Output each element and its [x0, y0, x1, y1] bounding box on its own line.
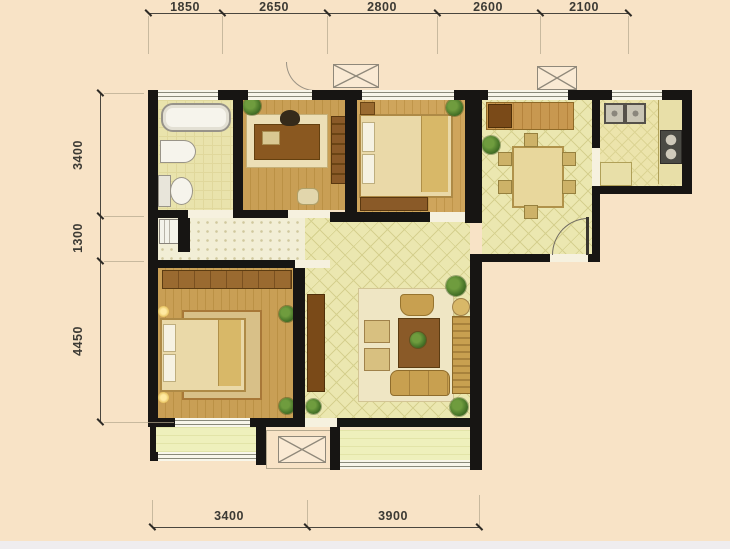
refrigerator-icon — [488, 104, 512, 128]
stove-icon — [660, 130, 682, 164]
dining-table-icon — [512, 146, 564, 208]
ac-platform-icon — [333, 64, 379, 88]
entry-door-leaf — [586, 217, 589, 255]
washing-machine-icon — [159, 219, 180, 244]
wall-kitchen-bottom — [592, 186, 692, 194]
wall-master-top — [148, 260, 295, 268]
dim-label-top-2: 2650 — [244, 0, 304, 14]
door-opening-bedroom2 — [430, 212, 465, 222]
wall-study-bedroom2 — [345, 90, 357, 218]
side-chair-icon — [364, 320, 390, 343]
dim-label-top-1: 1850 — [155, 0, 215, 14]
nightstand-icon — [360, 102, 375, 115]
door-opening-bathroom — [188, 210, 233, 218]
dim-label-left-1: 3400 — [71, 125, 85, 185]
door-opening-balcony — [305, 418, 337, 427]
wall-dining-bottom-end — [588, 254, 600, 262]
tv-cabinet-icon — [307, 294, 325, 392]
master-balcony-floor — [156, 427, 256, 453]
bench-icon — [360, 197, 428, 211]
wall-living-balcony-right — [470, 430, 482, 470]
wall-dining-bottom — [470, 254, 550, 262]
dim-guide — [104, 93, 144, 94]
window-bedroom2 — [362, 90, 454, 100]
pillow-icon — [163, 324, 176, 352]
bed-master-blanket — [218, 320, 241, 386]
dim-guide — [437, 16, 438, 54]
wall-kitchen-right — [682, 90, 692, 194]
window-master-south — [175, 418, 250, 427]
wall-kitchen-left — [592, 100, 600, 148]
dim-label-bottom-2: 3900 — [363, 509, 423, 523]
round-table-icon — [452, 298, 470, 316]
wall-living-south — [337, 418, 470, 427]
dim-line — [152, 527, 479, 528]
office-chair-icon — [280, 110, 300, 126]
plant-icon — [482, 136, 500, 154]
dim-guide — [327, 16, 328, 54]
wall-balcony-cap — [150, 452, 158, 461]
window-living-balcony — [340, 460, 470, 469]
dim-guide — [152, 500, 153, 527]
dim-guide — [540, 16, 541, 54]
dim-guide — [628, 16, 629, 54]
ac-platform-icon — [537, 66, 577, 90]
wall-living-balcony-left — [330, 425, 340, 470]
plant-icon — [450, 398, 468, 416]
door-opening-entry — [550, 254, 588, 262]
pillow-icon — [362, 154, 375, 184]
side-chair-icon — [364, 348, 390, 371]
dim-guide — [307, 500, 308, 527]
ac-platform-icon — [278, 436, 326, 463]
floor-lamp-icon — [158, 392, 169, 403]
floor-plan: 1850 2650 2800 2600 2100 3400 1300 4450 … — [0, 0, 730, 549]
dim-guide — [479, 495, 480, 527]
door-opening-study — [288, 210, 330, 218]
dining-chair-icon — [498, 180, 512, 194]
desk-item — [262, 131, 280, 145]
dining-chair-icon — [562, 152, 576, 166]
plant-icon — [446, 276, 466, 296]
sideboard-icon — [452, 316, 472, 394]
exterior-door-swing-icon — [286, 62, 315, 91]
dim-label-top-4: 2600 — [458, 0, 518, 14]
kitchen-sink-icon — [604, 103, 625, 124]
living-balcony-floor — [340, 430, 470, 461]
dim-label-bottom-1: 3400 — [199, 509, 259, 523]
door-opening-kitchen — [592, 148, 600, 186]
door-opening-master — [295, 260, 330, 268]
dining-chair-icon — [524, 205, 538, 219]
dining-chair-icon — [562, 180, 576, 194]
window-master-balcony — [158, 452, 256, 461]
kitchen-sink-icon — [625, 103, 646, 124]
dim-label-top-5: 2100 — [554, 0, 614, 14]
wardrobe-icon — [162, 270, 292, 289]
pillow-icon — [163, 354, 176, 382]
dim-label-left-2: 1300 — [71, 208, 85, 268]
dim-guide — [222, 16, 223, 54]
page-edge-strip — [0, 541, 730, 549]
dim-line — [100, 93, 101, 422]
wall-dining-right — [592, 186, 600, 262]
window-dining — [488, 90, 568, 100]
dim-label-top-3: 2800 — [352, 0, 412, 14]
wall-study-bottom — [233, 210, 288, 218]
sofa-icon — [390, 370, 450, 396]
wall-bedroom2-right — [465, 90, 482, 223]
window-kitchen — [612, 90, 662, 100]
toilet-bowl-icon — [170, 177, 193, 205]
ottoman-icon — [297, 188, 319, 205]
kitchen-counter-2 — [600, 162, 632, 186]
plant-icon — [446, 99, 463, 116]
wall-master-balcony-right — [256, 427, 266, 465]
bed2-blanket — [421, 116, 448, 192]
pillow-icon — [362, 122, 375, 152]
wall-master-right — [293, 260, 305, 418]
dim-guide — [148, 16, 149, 54]
wall-exterior-left — [148, 90, 158, 427]
dining-chair-icon — [524, 133, 538, 147]
floor-lamp-icon — [158, 306, 169, 317]
wash-basin-icon — [160, 140, 196, 163]
wall-living-right — [470, 254, 482, 430]
window-study — [248, 90, 312, 100]
wall-bathroom-study — [233, 90, 243, 218]
window-bathroom — [158, 90, 218, 100]
dining-chair-icon — [498, 152, 512, 166]
plant-icon — [410, 332, 426, 348]
armchair-icon — [400, 294, 434, 316]
dim-guide — [104, 261, 144, 262]
plant-icon — [306, 399, 321, 414]
dim-guide — [104, 216, 144, 217]
dim-guide — [104, 422, 174, 423]
bathtub-icon — [161, 103, 231, 132]
dim-label-left-3: 4450 — [71, 311, 85, 371]
